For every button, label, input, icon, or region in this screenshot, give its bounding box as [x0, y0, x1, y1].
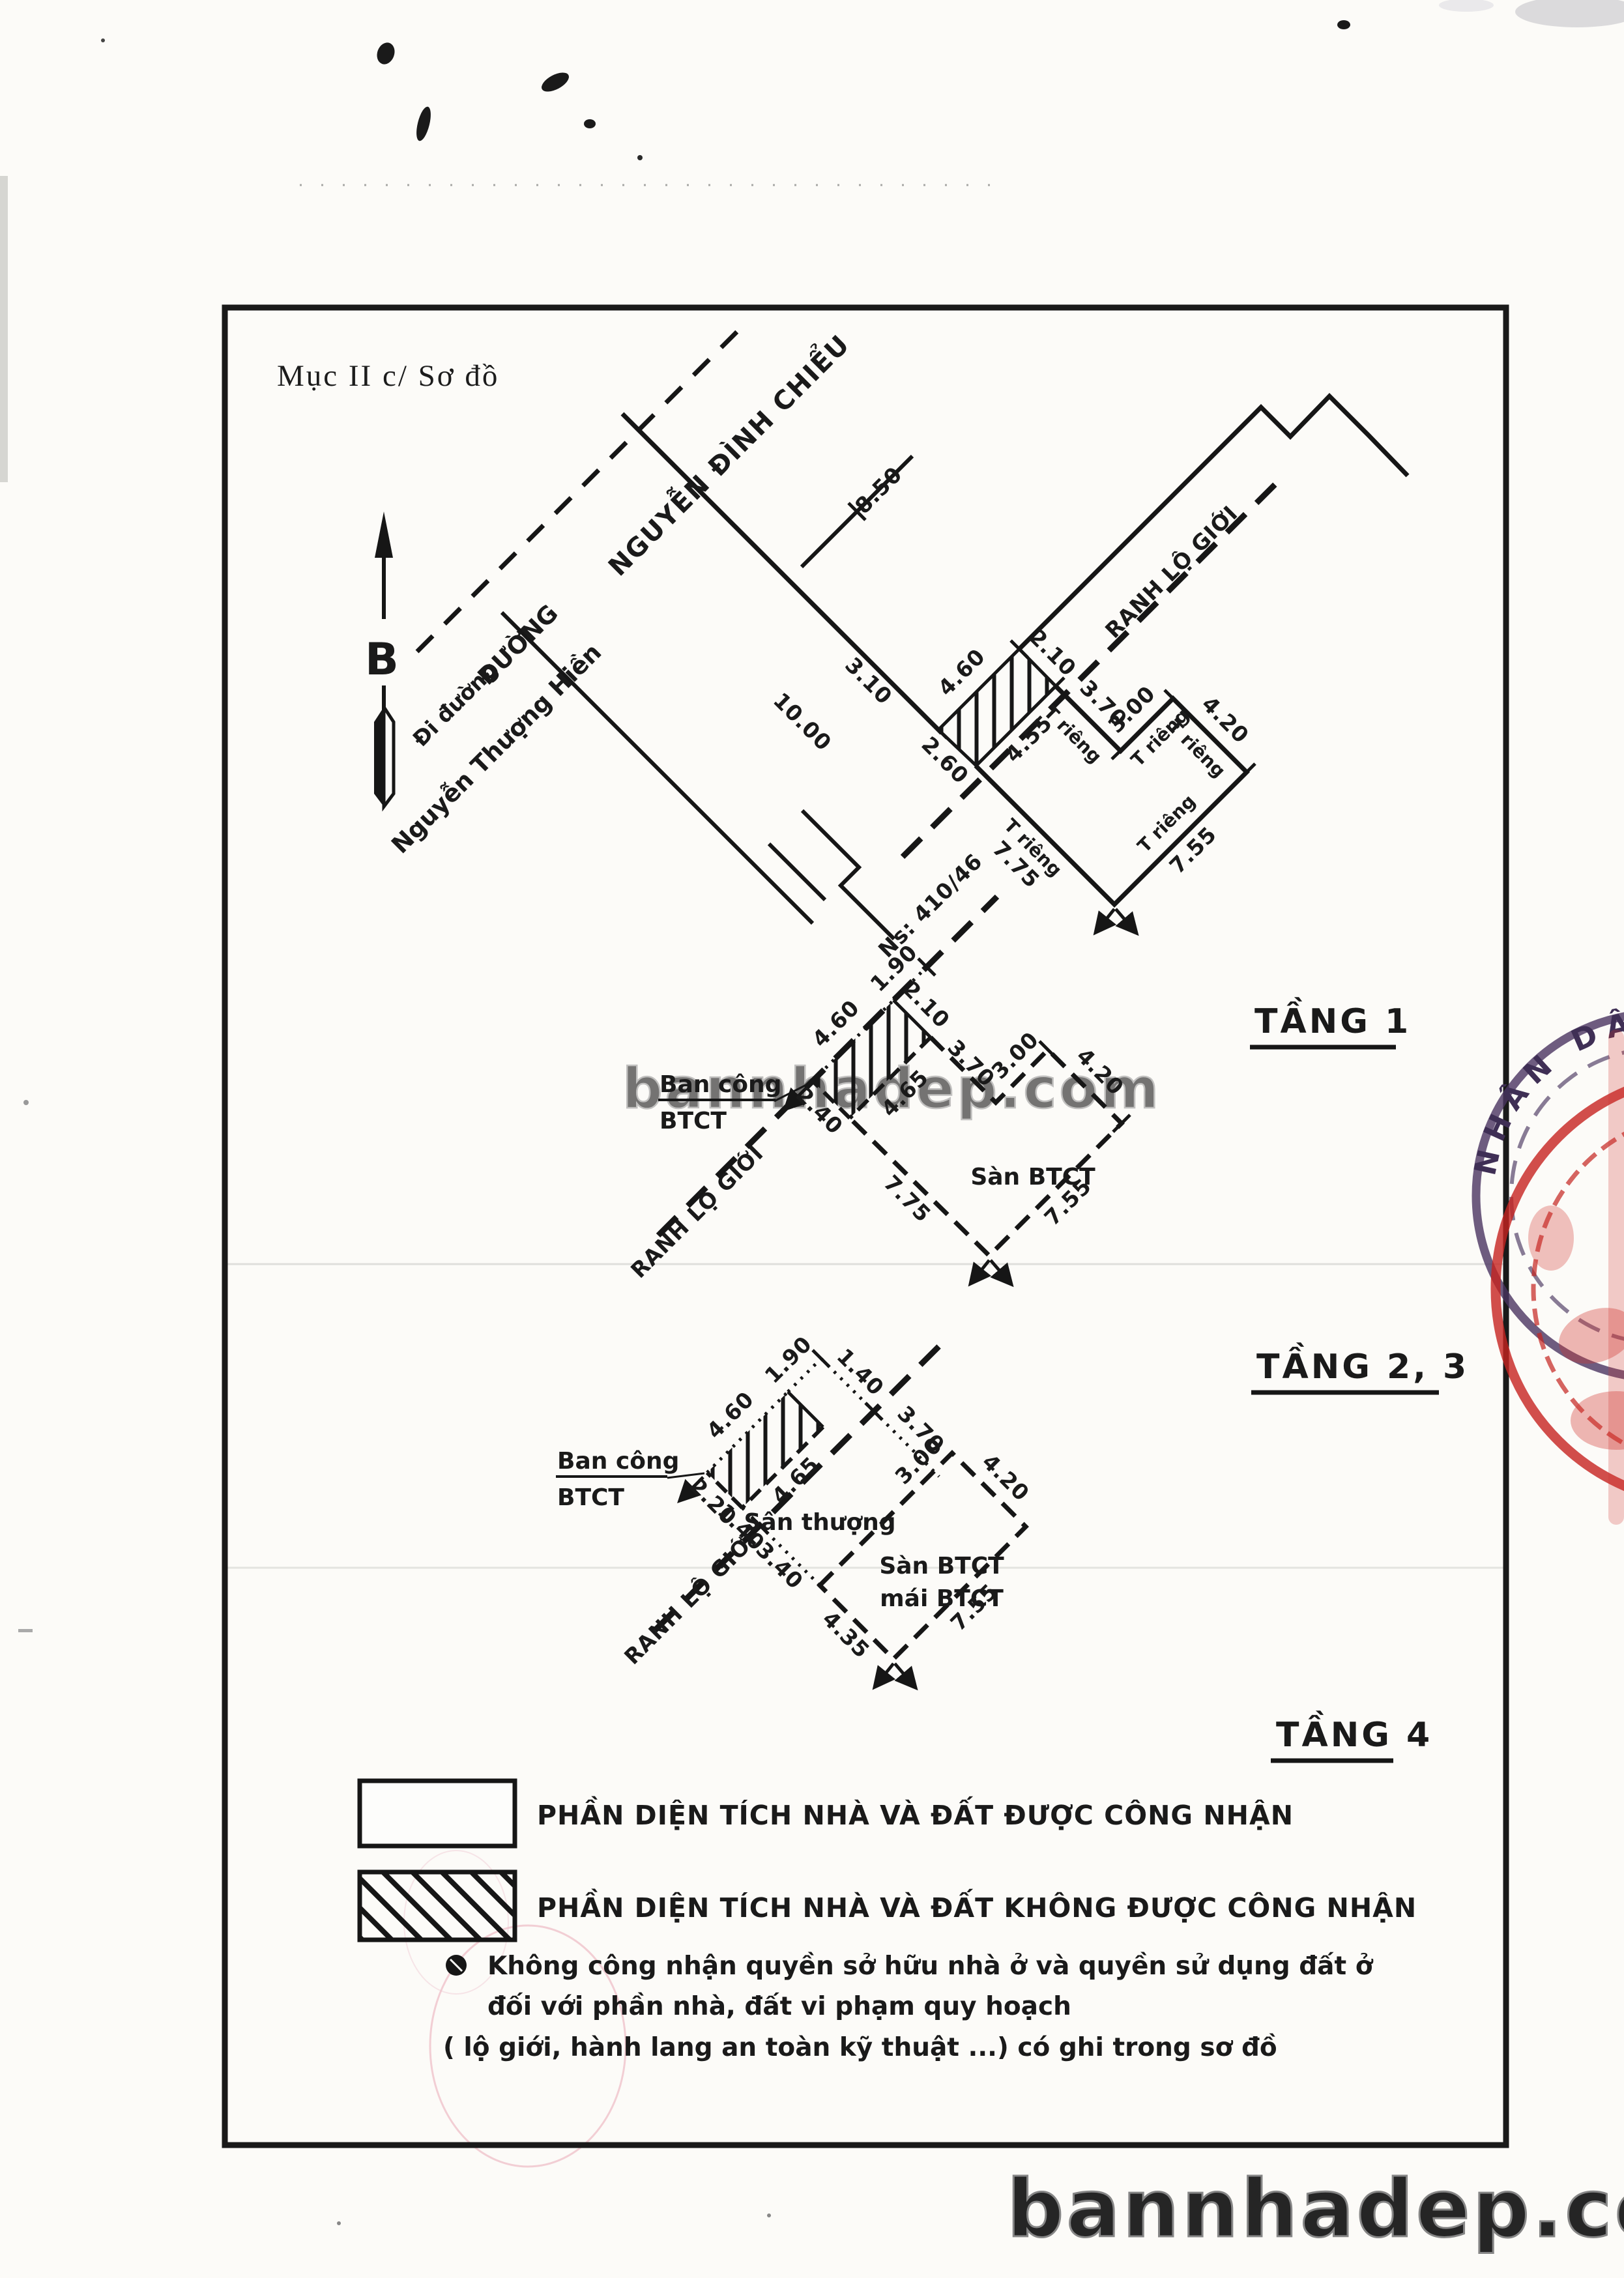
legend-swatch-recognized [360, 1781, 515, 1846]
watermark-bottom: bannhadep.com [1007, 2163, 1624, 2255]
alley-line2 [769, 844, 825, 900]
north-arrow: B [365, 512, 399, 807]
ranh-lo-gioi-label-f4: RANH LỘ GIỚI [618, 1526, 762, 1669]
balcony-label2-f4: BTCT [557, 1484, 624, 1511]
balcony-label-f4: Ban công [557, 1448, 679, 1475]
floor4-title: TẦNG 4 [1276, 1710, 1432, 1755]
dim-f23-775: 7.75 [878, 1170, 936, 1228]
scanned-document-page: bannhadep.com Mục II c/ Sơ đồ B [0, 0, 1624, 2278]
official-stamp: NHÂN DÂN [1467, 1003, 1624, 1525]
legend-swatch-not-recognized [360, 1872, 515, 1940]
dim-f4-435: 4.35 [817, 1606, 875, 1664]
floor4-plan: Ban công BTCT 4.60 1.90 1.40 2.20 1.40 4… [556, 1331, 1432, 1761]
ranh-lo-gioi-label-f23: RANH LỘ GIỚI [625, 1140, 768, 1283]
house-number: Ns: 410/46 [873, 848, 987, 962]
dim-f4-190: 1.90 [760, 1331, 817, 1389]
legend-note-line1: Không công nhận quyền sở hữu nhà ở và qu… [487, 1952, 1374, 1981]
legend-not-recognized-label: PHẦN DIỆN TÍCH NHÀ VÀ ĐẤT KHÔNG ĐƯỢC CÔN… [537, 1888, 1417, 1924]
north-arrow-head [375, 512, 393, 558]
san-btct-mai-label2: mái BTCT [880, 1585, 1004, 1612]
alley-line [802, 811, 894, 939]
street-name-ndc: NGUYỄN ĐÌNH CHIỂU [599, 325, 856, 583]
dim-f4-140a: 1.40 [832, 1344, 889, 1401]
floor1-title: TẦNG 1 [1254, 997, 1411, 1041]
balcony-label2-f23: BTCT [660, 1108, 727, 1134]
dim-1000: 10.00 [768, 687, 837, 756]
balcony-label-f23: Ban công [660, 1071, 781, 1098]
dim-f1-420: 4.20 [1196, 691, 1254, 749]
floor23-plan: Ban công BTCT 4.60 1.90 2.10 4.65 2.40 3… [625, 897, 1469, 1392]
street-edge-line2 [502, 613, 813, 923]
legend: PHẦN DIỆN TÍCH NHÀ VÀ ĐẤT ĐƯỢC CÔNG NHẬN… [360, 1781, 1417, 2062]
dim-f4-420: 4.20 [977, 1449, 1034, 1507]
san-thuong-label: Sân thượng [744, 1509, 896, 1536]
floor1-plan: NGUYỄN ĐÌNH CHIỂU 8.50 ĐƯỜNG Đi đường Ng… [386, 325, 1411, 1047]
legend-recognized-label: PHẦN DIỆN TÍCH NHÀ VÀ ĐẤT ĐƯỢC CÔNG NHẬN [537, 1796, 1294, 1831]
north-label: B [365, 634, 399, 685]
san-btct-mai-label1: Sàn BTCT [879, 1553, 1004, 1579]
north-tail-outline [384, 707, 394, 807]
san-btct-label: Sàn BTCT [970, 1164, 1095, 1190]
document-border-frame [225, 308, 1506, 2145]
legend-note-line3: ( lộ giới, hành lang an toàn kỹ thuật ..… [443, 2033, 1277, 2062]
ranh-lo-gioi-label-f1: RANH LỘ GIỚI [1099, 500, 1243, 643]
street-edge-line [622, 414, 942, 733]
floor23-title: TẦNG 2, 3 [1256, 1342, 1469, 1387]
legend-note-line2: đối với phần nhà, đất vi phạm quy hoạch [487, 1992, 1071, 2021]
page-title: Mục II c/ Sơ đồ [277, 359, 499, 393]
